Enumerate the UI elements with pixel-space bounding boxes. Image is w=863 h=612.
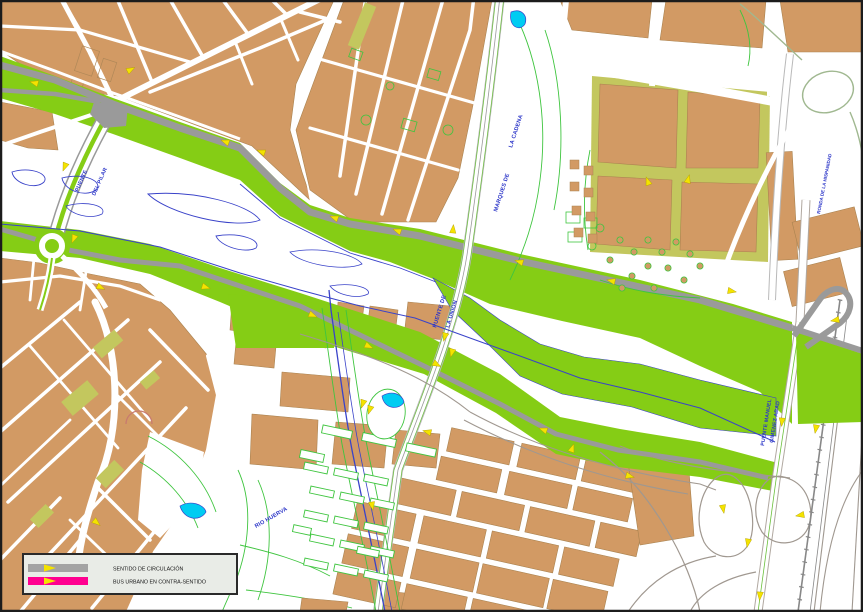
svg-text:BUS URBANO EN CONTRA-SENTIDO: BUS URBANO EN CONTRA-SENTIDO (113, 580, 206, 586)
svg-text:SENTIDO DE CIRCULACIÓN: SENTIDO DE CIRCULACIÓN (113, 566, 184, 573)
